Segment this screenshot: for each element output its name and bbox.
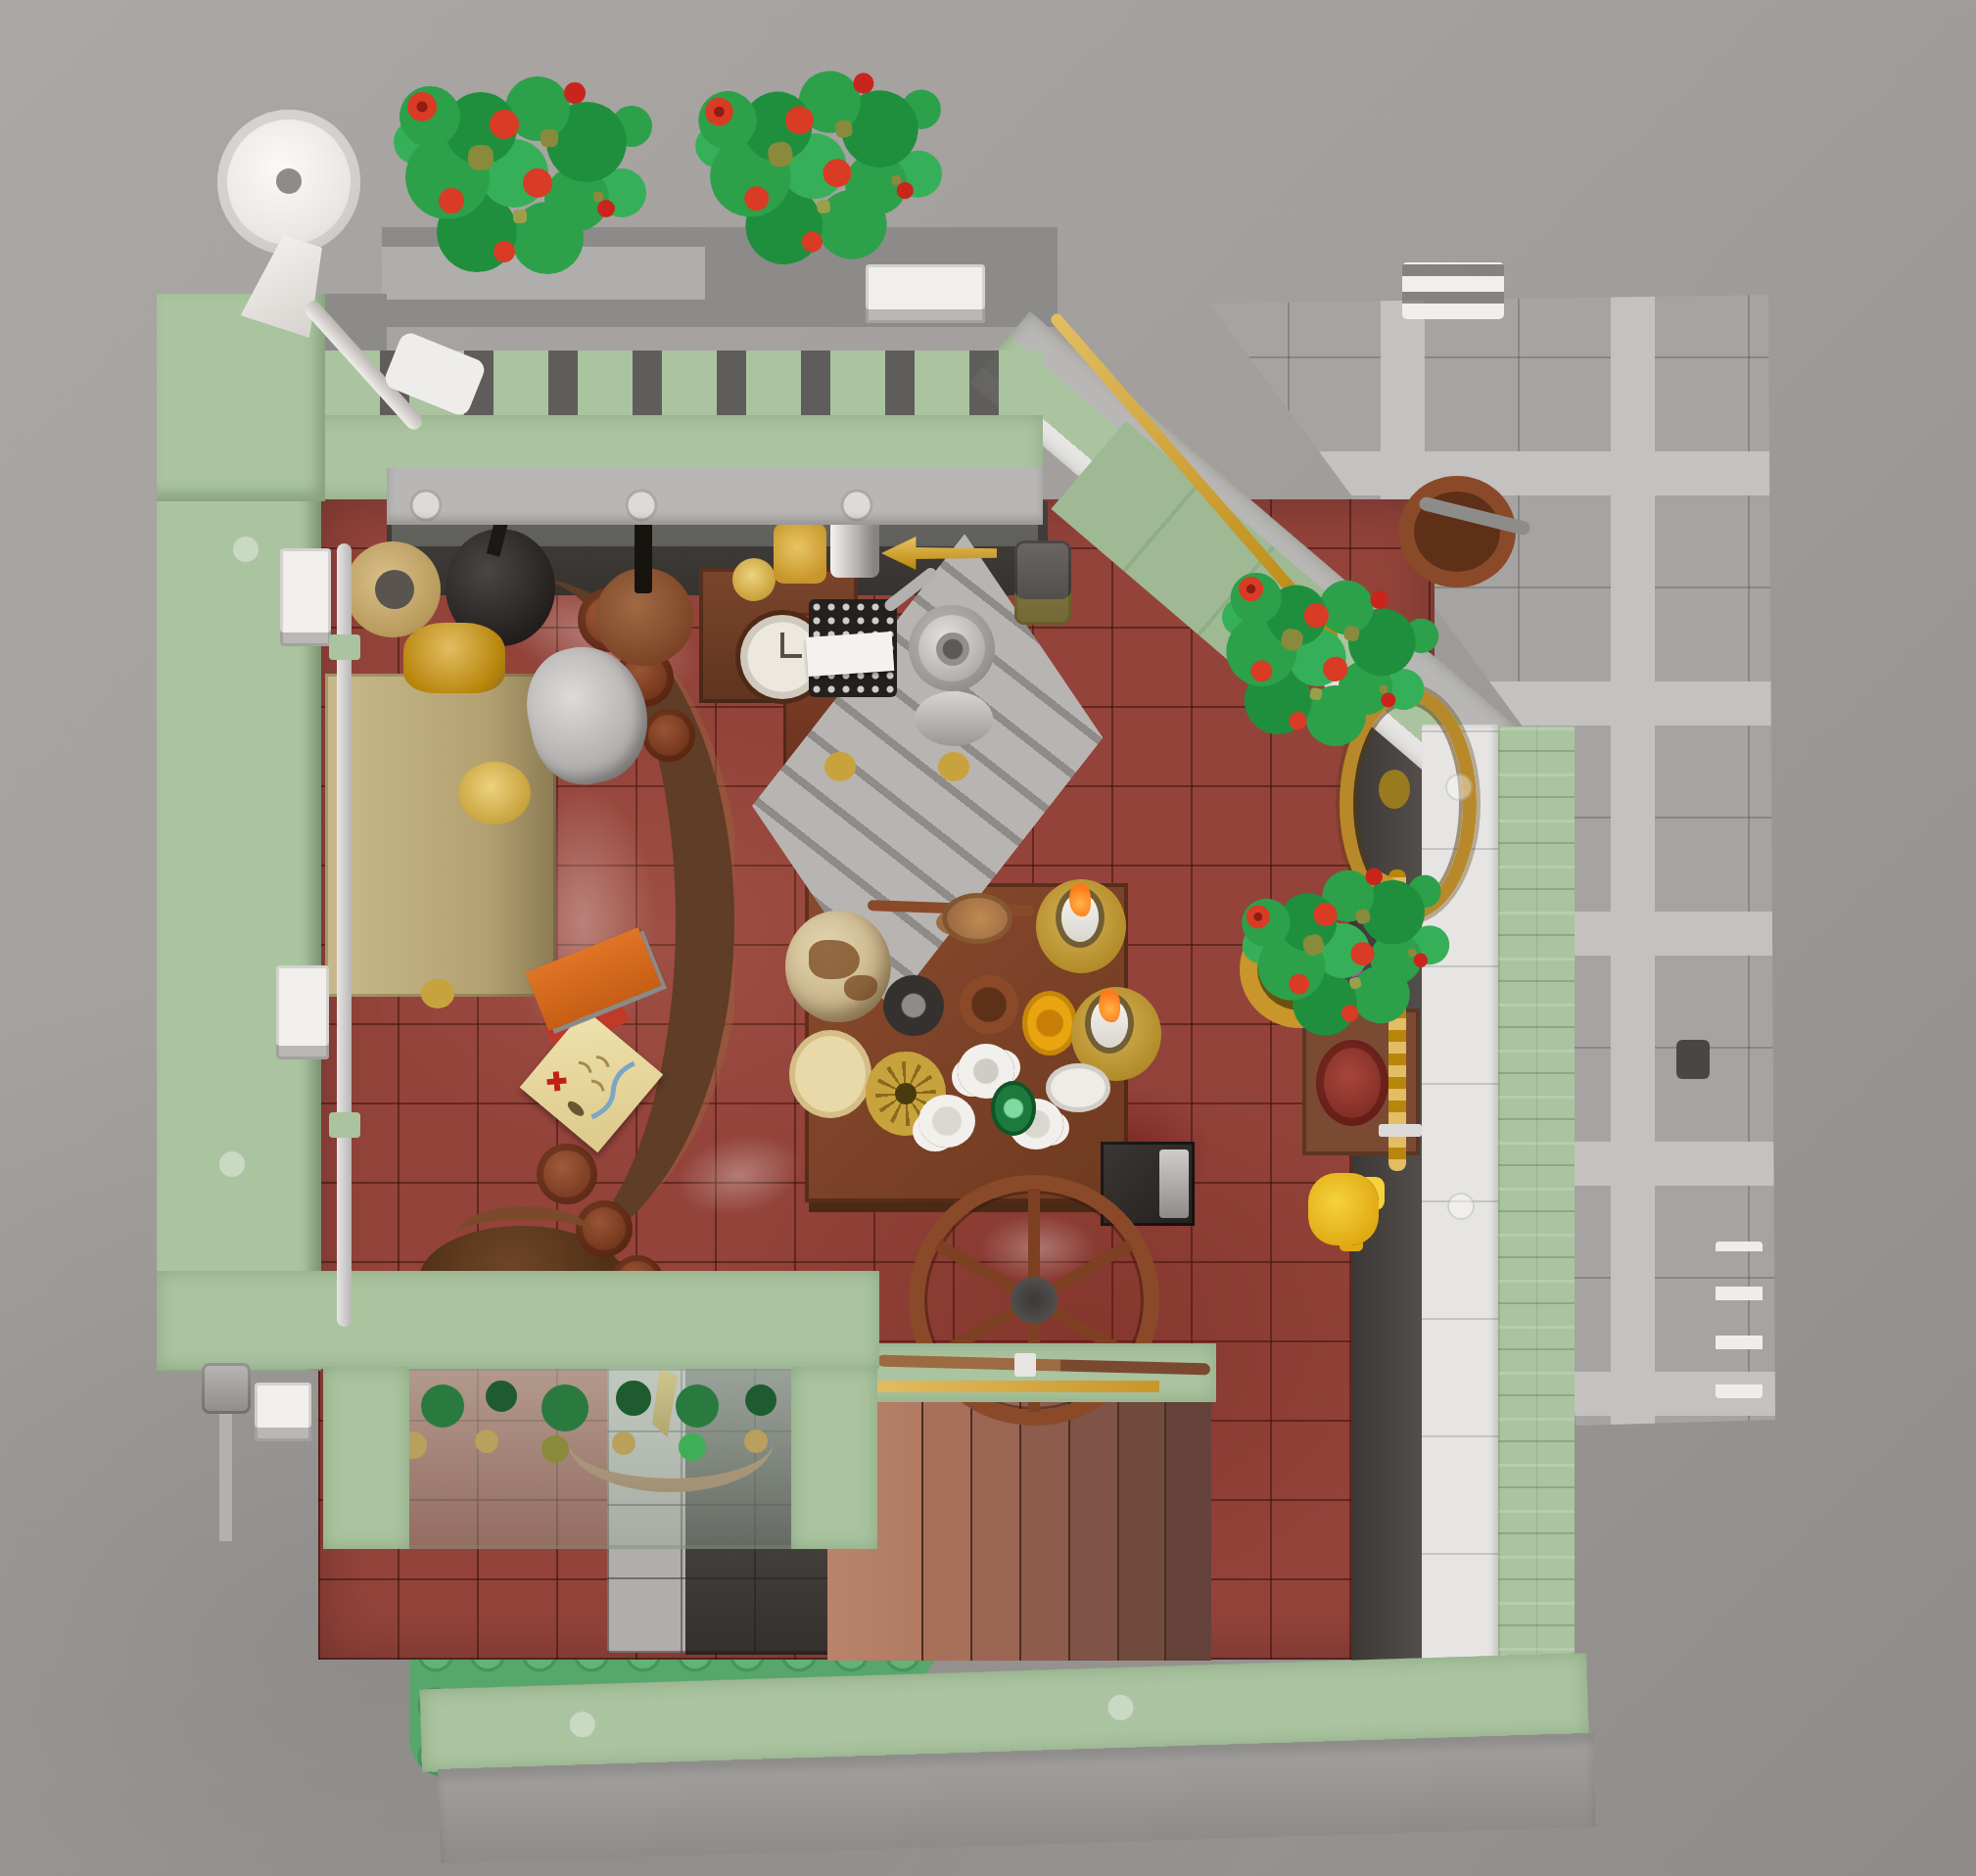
coping-strip: [387, 468, 1043, 525]
gold-bottle: [774, 523, 826, 584]
ledge-stud: [1447, 1193, 1475, 1220]
wall-top-light: [382, 247, 705, 300]
desk-lamp-brown-stem: [635, 517, 652, 593]
pot-black: [883, 975, 944, 1036]
musket-clip: [1014, 1353, 1036, 1377]
gold-armor: [403, 623, 505, 693]
globe-continent: [809, 940, 860, 979]
rod-clip: [329, 1112, 360, 1138]
wall-stud: [231, 535, 260, 564]
rose-bush-3: [1227, 569, 1284, 626]
stair-step: [1166, 1398, 1211, 1661]
lantern-gray: [1014, 540, 1071, 625]
gold-rail-strip: [866, 1381, 1159, 1392]
barrel-darkred: [1316, 1040, 1388, 1126]
curtain-rod: [337, 543, 352, 1327]
candle-flame-icon: [1069, 883, 1091, 916]
bottle: [642, 709, 695, 762]
pot-brown: [960, 975, 1018, 1034]
corner-pot-brown: [1398, 476, 1516, 587]
plate-white: [918, 1095, 975, 1148]
oil-lamp-brown: [942, 893, 1012, 944]
stove-safe-plate: [1159, 1149, 1189, 1218]
sidewalk-grate: [1402, 262, 1504, 319]
cheese-wheel: [789, 1030, 871, 1118]
bush-stems: [767, 141, 793, 167]
goblet-green: [991, 1081, 1036, 1136]
sidewalk-drain-icon: [1676, 1040, 1710, 1079]
meat-grinder-hole: [936, 633, 969, 666]
desk-foot-gold: [938, 752, 969, 781]
clock-hand: [782, 654, 802, 658]
bottomleft-wall: [157, 1271, 879, 1369]
lego-room-photo: [0, 0, 1976, 1876]
window-frame-left-2: [276, 965, 329, 1059]
bottom-wall-group: [420, 1653, 1592, 1875]
stair-step: [1070, 1398, 1117, 1661]
typewriter-paper: [806, 632, 895, 677]
gold-plate: [458, 762, 531, 824]
bottle: [537, 1144, 597, 1204]
rod-clip: [329, 634, 360, 660]
desk-foot-gold: [824, 752, 856, 781]
wheel-hub: [1011, 1277, 1058, 1324]
ledge-stud: [1445, 774, 1473, 801]
bush-flowers-icon: [407, 92, 437, 121]
street-lamp-hole: [276, 168, 302, 194]
ink-bottle-seal: [1343, 958, 1363, 977]
gold-candlestick: [732, 558, 776, 601]
grinder-base: [915, 691, 993, 746]
right-wall-cobbles: [1498, 727, 1575, 1672]
stair-step: [1021, 1398, 1068, 1661]
stair-step: [1119, 1398, 1164, 1661]
scorpion-yellow-icon: [1308, 1173, 1379, 1245]
sidewalk-railing: [1716, 1242, 1763, 1398]
ships-wheel-hub: [1379, 770, 1410, 809]
stair-step: [923, 1398, 970, 1661]
window-frame-left-1: [280, 548, 331, 646]
porch-frame-left: [323, 1367, 409, 1549]
sword-clip: [1379, 1124, 1422, 1137]
porch-frame-right: [791, 1367, 877, 1549]
plate-white-oval: [1046, 1063, 1110, 1112]
porch-door-frame: [255, 1383, 311, 1441]
bucket-yellow: [1022, 991, 1077, 1055]
stair-step: [972, 1398, 1019, 1661]
wall-stud: [217, 1149, 247, 1179]
candle-flame-icon: [1099, 989, 1120, 1022]
rose-bush-1: [400, 86, 458, 145]
staircase: [827, 1398, 1211, 1661]
window-top-1: [866, 264, 985, 323]
chair-back: [456, 1206, 593, 1264]
sword-clip: [1377, 932, 1420, 945]
gear-gold-hub: [895, 1083, 917, 1104]
desk-lamp-tan-cap: [375, 570, 414, 609]
desk-foot-gold: [421, 979, 454, 1008]
porch-lantern-icon: [202, 1363, 251, 1414]
bush-stems: [468, 145, 494, 170]
rose-bush-2: [695, 88, 757, 150]
